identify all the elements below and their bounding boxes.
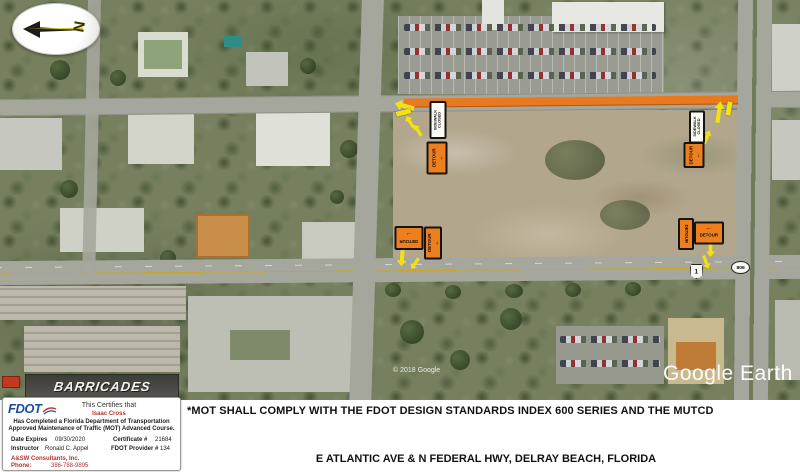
detour-label: DETOUR	[399, 239, 418, 243]
detour-arrow-icon: ←	[438, 155, 442, 161]
detour-sign: DETOUR →	[394, 226, 423, 250]
parking-lot-bottom	[556, 326, 664, 384]
townhouse-row	[0, 286, 186, 320]
tree	[60, 180, 78, 198]
tree	[300, 58, 316, 74]
certifies-label: This Certifies that	[43, 402, 175, 409]
road-n-federal-hwy	[734, 0, 772, 400]
tree	[330, 190, 344, 204]
road-ne-7th-ave	[349, 0, 384, 400]
tree	[110, 70, 126, 86]
building-roof	[224, 36, 242, 47]
detour-sign: DETOUR ←	[426, 141, 447, 174]
certificate-label: Certificate #	[113, 437, 147, 443]
sidewalk-closed-label: SIDEWALK CLOSED	[693, 116, 701, 137]
google-copyright: © 2018 Google	[393, 367, 440, 374]
parked-cars-row	[404, 24, 656, 31]
date-expires-label: Date Expires	[11, 437, 47, 443]
tree	[385, 283, 401, 297]
instructor-value: Ronald C. Appel	[45, 446, 88, 452]
building-roof	[0, 118, 62, 170]
townhouse-row	[24, 326, 180, 372]
certificate-value: 21684	[155, 437, 172, 443]
us-1-label: 1	[695, 268, 699, 275]
detour-label: DETOUR	[684, 225, 688, 244]
mot-compliance-note: *MOT SHALL COMPLY WITH THE FDOT DESIGN S…	[187, 405, 787, 417]
instructor-label: Instructor	[11, 446, 39, 452]
building-roof	[256, 110, 330, 166]
detour-label: DETOUR	[688, 146, 692, 165]
building-roof	[60, 208, 144, 252]
building-roof	[144, 40, 182, 69]
tree	[50, 60, 70, 80]
tree	[400, 320, 424, 344]
north-arrow-compass: N	[12, 3, 100, 55]
location-title: E ATLANTIC AVE & N FEDERAL HWY, DELRAY B…	[180, 453, 792, 465]
tree	[340, 140, 358, 158]
tree	[445, 285, 461, 299]
tree	[450, 350, 470, 370]
detour-sign: ← DETOUR	[694, 221, 724, 244]
building-roof	[246, 52, 288, 86]
detour-arrow-icon: ←	[695, 152, 699, 158]
parked-cars-row	[560, 336, 660, 343]
sidewalk-closed-sign: SIDEWALK CLOSED	[689, 110, 705, 143]
parked-cars-row	[404, 72, 656, 79]
tree	[625, 282, 641, 296]
fdot-certification-card: FDOT This Certifies that Isaac Cross Has…	[2, 397, 181, 471]
detour-sign: DETOUR ←	[424, 226, 442, 259]
overgrowth-patch	[545, 140, 605, 180]
detour-label: DETOUR	[700, 233, 719, 237]
provider-value: 134	[160, 446, 170, 452]
date-expires-value: 09/30/2020	[55, 437, 85, 443]
satellite-map: SIDEWALK CLOSED DETOUR ← SIDEWALK CLOSED…	[0, 0, 800, 400]
completion-line-1: Has Completed a Florida Department of Tr…	[3, 419, 180, 425]
tree	[505, 284, 523, 298]
certified-name: Isaac Cross	[43, 411, 175, 417]
parked-cars-row	[560, 360, 660, 367]
sidewalk-closed-label: SIDEWALK CLOSED	[434, 109, 442, 130]
detour-label: DETOUR	[428, 233, 432, 252]
barricades-yard-flag	[2, 376, 20, 388]
completion-line-2: Approved Maintenance of Traffic (MOT) Ad…	[3, 426, 180, 432]
phone-label: Phone:	[11, 463, 31, 469]
provider-label: FDOT Provider #	[111, 446, 158, 452]
sr-806-route-shield: 806	[731, 261, 750, 274]
building-roof	[772, 120, 800, 180]
overgrowth-patch	[600, 200, 650, 230]
detour-arrow-icon: ←	[706, 226, 712, 230]
building-roof	[196, 214, 250, 258]
building-roof	[128, 112, 194, 164]
barricades-label: BARRICADES	[53, 379, 152, 394]
courtyard	[230, 330, 290, 360]
company-name: A&SW Consultants, Inc.	[11, 456, 79, 462]
fdot-logo-text: FDOT	[8, 401, 41, 416]
detour-sign: DETOUR ←	[683, 142, 704, 168]
detour-arrow-icon: →	[406, 232, 412, 236]
parked-cars-row	[404, 48, 656, 55]
google-earth-watermark: Google Earth	[663, 362, 793, 386]
building-roof	[772, 24, 800, 94]
barricades-building-sign: BARRICADES	[25, 374, 179, 398]
detour-arrow-icon: ←	[434, 240, 438, 246]
tree	[500, 308, 522, 330]
tree	[565, 283, 581, 297]
phone-value: 386-788-9895	[51, 463, 88, 469]
traffic-control-plan-page: SIDEWALK CLOSED DETOUR ← SIDEWALK CLOSED…	[0, 0, 800, 472]
sr-806-label: 806	[736, 265, 744, 271]
detour-sign: DETOUR	[678, 218, 694, 250]
detour-label: DETOUR	[431, 148, 435, 167]
sidewalk-closed-sign: SIDEWALK CLOSED	[429, 101, 446, 139]
